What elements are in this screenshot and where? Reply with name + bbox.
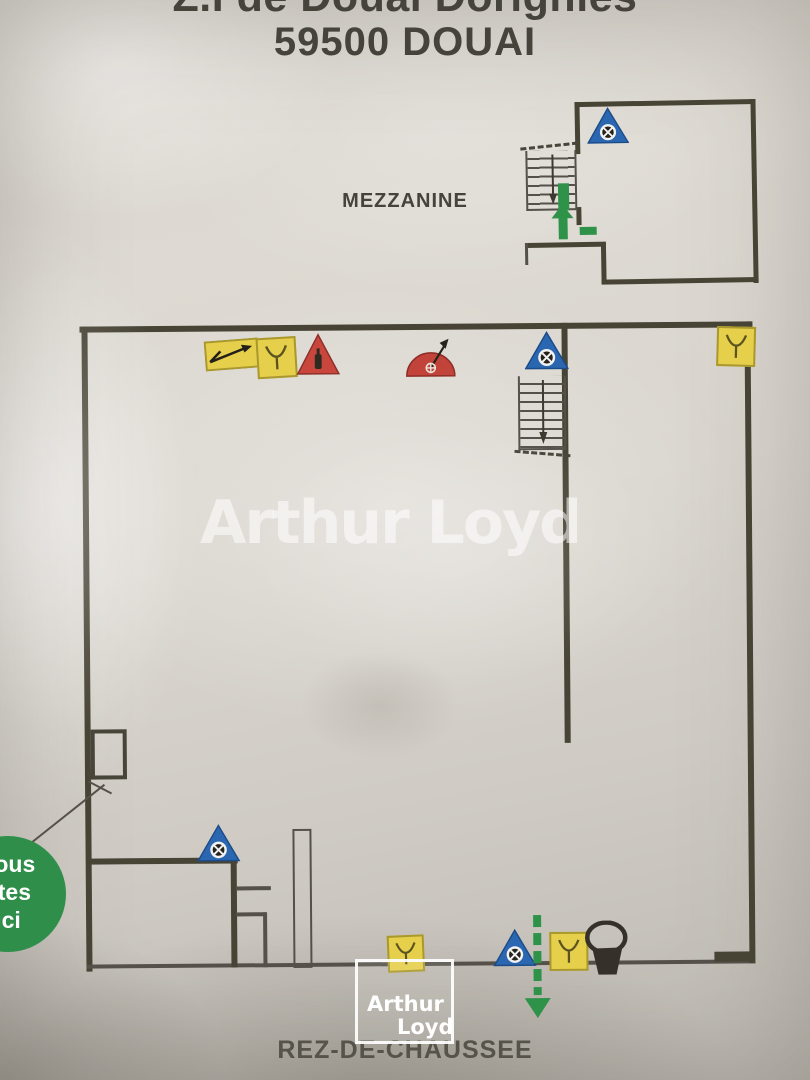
plan-wall-right [744, 321, 755, 963]
plan-wall-interior [236, 912, 266, 916]
green-dashed-arrow-icon [533, 933, 541, 945]
plan-wall-corner [714, 951, 752, 961]
door-rect [91, 729, 127, 779]
plan-wall-interior [263, 912, 267, 967]
you-are-here-line2: êtes [0, 878, 66, 906]
you-are-here-line3: ici [0, 906, 66, 934]
red-triangle-extinguisher-icon [295, 332, 340, 377]
blue-triangle-alarm-icon [493, 928, 536, 967]
arthur-loyd-logo-box: Arthur Loyd [355, 959, 454, 1044]
blue-triangle-alarm-icon [196, 823, 240, 862]
black-bucket-icon [583, 920, 633, 976]
you-are-here-pointer-line [26, 784, 106, 848]
evacuation-plan-photo: Z.I de Douai Dorignies 59500 DOUAI MEZZA… [0, 0, 810, 1080]
green-dashed-arrow-icon [533, 951, 541, 963]
yellow-square-valve-icon [716, 326, 756, 367]
arthur-loyd-logo-line1: Arthur [367, 992, 444, 1016]
yellow-square-valve-icon [256, 336, 298, 379]
blue-triangle-alarm-icon [524, 330, 568, 371]
stairs-down-arrow [518, 376, 567, 450]
plan-thin-room [292, 829, 312, 968]
arthur-loyd-watermark: Arthur Loyd [200, 488, 580, 558]
green-dashed-arrow-icon [534, 987, 542, 995]
you-are-here-line1: Vous [0, 850, 66, 878]
yellow-rect-electric-arrow-icon [204, 337, 260, 371]
red-semicircle-hose-reel-icon [406, 336, 456, 378]
plan-wall-interior [236, 886, 271, 890]
green-dashed-arrow-icon [534, 969, 542, 981]
arthur-loyd-logo-line2: Loyd [397, 1015, 454, 1039]
plan-wall-left [81, 327, 92, 972]
green-dashed-arrow-head [525, 998, 551, 1018]
plan-wall-top [79, 321, 752, 332]
green-dashed-arrow-icon [533, 915, 541, 927]
